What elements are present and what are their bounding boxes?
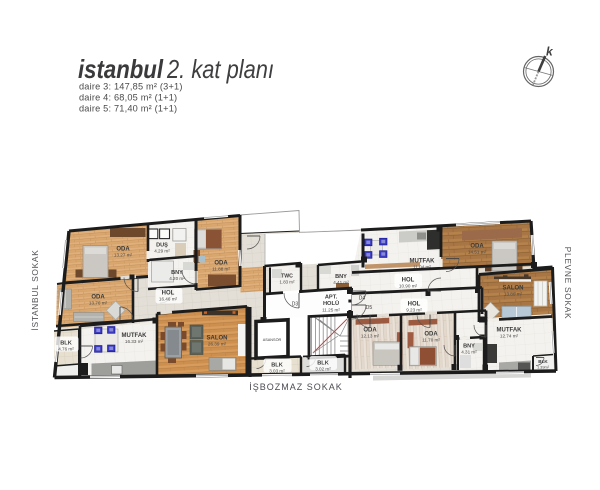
svg-text:16.33 m²: 16.33 m² — [125, 339, 144, 344]
svg-text:4.41 m²: 4.41 m² — [333, 280, 349, 285]
svg-text:11.88 m²: 11.88 m² — [212, 267, 230, 272]
svg-text:PLEVNE SOKAK: PLEVNE SOKAK — [563, 247, 573, 320]
svg-text:4.20 m²: 4.20 m² — [169, 276, 185, 281]
svg-text:1.39m²: 1.39m² — [537, 365, 550, 370]
svg-text:3.02 m²: 3.02 m² — [315, 367, 331, 372]
svg-text:13.27 m²: 13.27 m² — [114, 253, 133, 258]
svg-text:10.90 m²: 10.90 m² — [399, 284, 418, 289]
svg-text:APT.: APT. — [325, 295, 338, 301]
svg-text:11.25 m²: 11.25 m² — [322, 308, 340, 313]
svg-text:daire 3: 147,85 m² (3+1): daire 3: 147,85 m² (3+1) — [79, 82, 183, 92]
svg-text:3.03 m²: 3.03 m² — [269, 369, 285, 374]
svg-text:D5: D5 — [366, 305, 373, 311]
svg-text:16.46 m²: 16.46 m² — [159, 297, 178, 302]
svg-text:daire 5: 71,40 m² (1+1): daire 5: 71,40 m² (1+1) — [79, 104, 177, 114]
svg-text:k: k — [546, 45, 554, 59]
svg-text:9.23 m²: 9.23 m² — [406, 308, 422, 313]
svg-text:ASANSÖR: ASANSÖR — [263, 338, 282, 342]
svg-text:istanbul: istanbul — [78, 54, 164, 84]
svg-text:13.86 m²: 13.86 m² — [504, 292, 523, 297]
svg-text:14.51 m²: 14.51 m² — [468, 250, 487, 255]
svg-text:İŞBOZMAZ SOKAK: İŞBOZMAZ SOKAK — [249, 382, 343, 392]
svg-text:12.13 m²: 12.13 m² — [361, 334, 380, 339]
svg-text:BLK: BLK — [538, 359, 548, 364]
svg-text:4.29 m²: 4.29 m² — [154, 249, 170, 254]
svg-text:D4: D4 — [359, 296, 366, 302]
svg-text:12.74 m²: 12.74 m² — [500, 334, 519, 339]
svg-text:HOLÜ: HOLÜ — [323, 300, 339, 307]
svg-text:26.39 m²: 26.39 m² — [208, 342, 227, 347]
svg-text:İSTANBUL SOKAK: İSTANBUL SOKAK — [30, 249, 40, 330]
svg-text:1.83 m²: 1.83 m² — [280, 280, 295, 285]
svg-text:2. kat planı: 2. kat planı — [166, 54, 274, 84]
svg-text:4.76 m²: 4.76 m² — [58, 347, 74, 352]
svg-text:4.31 m²: 4.31 m² — [461, 350, 477, 355]
svg-text:D3: D3 — [292, 302, 299, 308]
svg-text:13.76 m²: 13.76 m² — [89, 301, 108, 306]
svg-text:11.70 m²: 11.70 m² — [422, 338, 440, 343]
svg-text:11.04 m²: 11.04 m² — [413, 265, 431, 270]
svg-text:daire 4: 68,05 m² (1+1): daire 4: 68,05 m² (1+1) — [79, 93, 177, 103]
